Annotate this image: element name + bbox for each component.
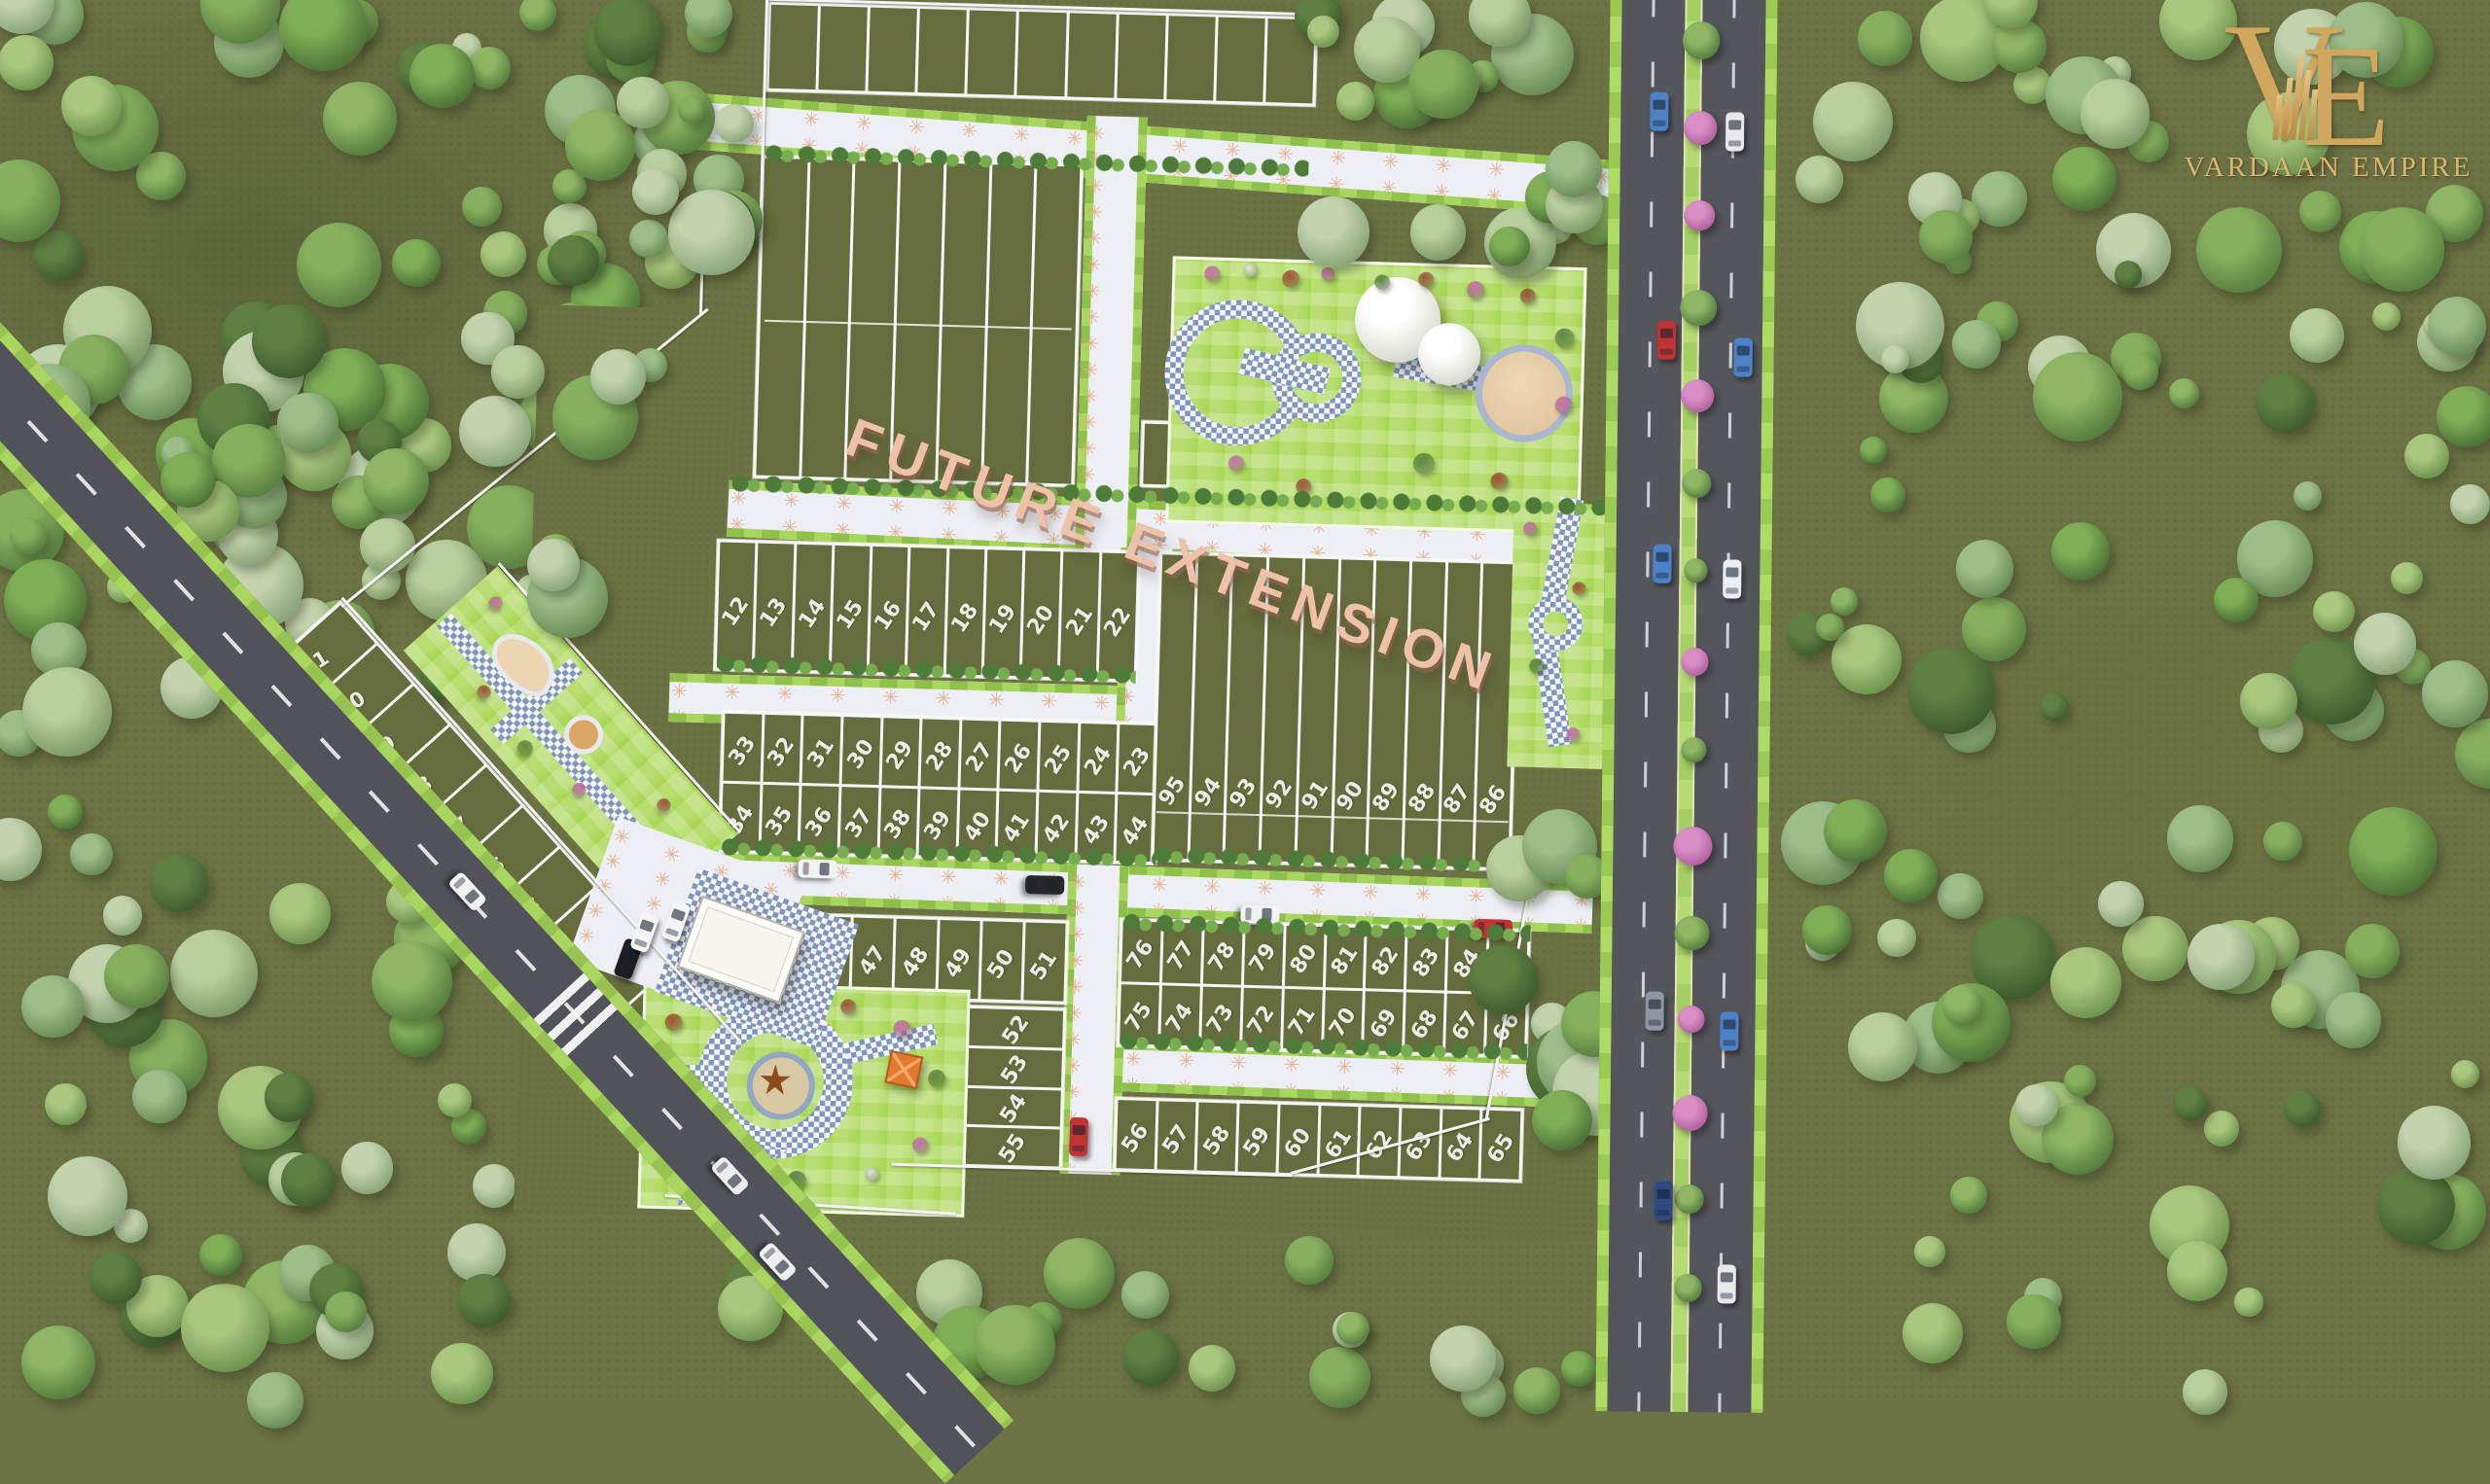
plot-95: 95	[1155, 554, 1195, 859]
car	[1725, 112, 1744, 151]
car	[1654, 1182, 1672, 1220]
shrub	[912, 1137, 928, 1152]
plot-57: 57	[1156, 1101, 1196, 1170]
plot-number: 36	[801, 803, 838, 841]
tree	[1683, 21, 1721, 59]
car	[1650, 92, 1668, 131]
plot-number: 41	[999, 809, 1036, 847]
future-plot	[756, 159, 807, 477]
plot-number: 64	[1441, 1128, 1478, 1166]
future-plot	[918, 9, 967, 93]
plot-number: 32	[764, 732, 800, 770]
brand-logo: V E VARDAAN EMPIRE	[2167, 4, 2490, 198]
tree	[1682, 469, 1712, 499]
shrub	[1572, 582, 1585, 595]
shrub	[928, 1070, 945, 1087]
future-plot	[768, 5, 817, 89]
plot-number: 94	[1190, 773, 1227, 811]
plot-number: 33	[724, 731, 761, 769]
flowering-tree	[1677, 1006, 1705, 1034]
future-plot	[938, 163, 989, 481]
plot-number: 90	[1333, 777, 1369, 815]
shrub	[1243, 263, 1257, 276]
plot-number: 17	[908, 598, 945, 636]
future-plot	[819, 6, 868, 90]
company-name: VARDAAN EMPIRE	[2167, 152, 2490, 184]
plot-number: 40	[959, 808, 996, 846]
plot-number: 31	[803, 734, 840, 772]
plot-64: 64	[1441, 1109, 1480, 1178]
plot-number: 52	[998, 1010, 1035, 1048]
plot-number: 20	[1023, 601, 1060, 639]
shrub	[1566, 727, 1580, 741]
plot-60: 60	[1278, 1105, 1318, 1174]
car	[798, 859, 837, 878]
plot-number: 53	[997, 1050, 1034, 1088]
plot-21: 21	[1060, 551, 1099, 678]
plot-number: 83	[1408, 943, 1445, 981]
car	[1645, 992, 1663, 1031]
lane-marking	[1637, 0, 1654, 1412]
plot-13: 13	[755, 544, 794, 670]
plot-number: 18	[946, 599, 983, 637]
lane-marking	[1718, 0, 1735, 1412]
plot-50: 50	[980, 921, 1022, 1000]
plot-number: 59	[1239, 1122, 1276, 1160]
plot-30: 30	[841, 717, 880, 785]
shrub	[1554, 328, 1575, 348]
plot-number: 22	[1099, 603, 1136, 641]
car	[1653, 545, 1671, 583]
plot-block-52-55: 52535455	[963, 1006, 1067, 1170]
shrub	[1520, 288, 1536, 303]
plot-number: 86	[1476, 782, 1512, 820]
plot-55: 55	[966, 1127, 1060, 1166]
plot-49: 49	[938, 920, 979, 999]
plot-number: 30	[842, 735, 879, 773]
future-plot	[1265, 18, 1314, 103]
plot-28: 28	[921, 719, 960, 787]
plot-52: 52	[969, 1008, 1063, 1047]
plot-row-33-23: 3332313029282726252423	[724, 714, 1157, 793]
car	[1025, 875, 1065, 895]
shrub	[1282, 270, 1299, 288]
plot-number: 89	[1369, 778, 1405, 816]
plot-33: 33	[724, 714, 763, 782]
plot-number: 79	[1245, 938, 1282, 976]
shrub	[840, 999, 856, 1014]
plot-number: 43	[1078, 811, 1115, 849]
plot-number: 38	[880, 805, 917, 843]
plot-number: 28	[921, 737, 958, 775]
tree	[1680, 290, 1717, 327]
amenity-park-east	[1507, 502, 1616, 769]
flowering-tree	[1672, 1095, 1708, 1131]
plot-number: 51	[1026, 946, 1063, 984]
shrub	[865, 1167, 878, 1181]
plot-16: 16	[870, 547, 908, 673]
plot-32: 32	[763, 715, 801, 783]
shrub	[1554, 396, 1572, 413]
shrub	[1413, 452, 1436, 475]
plot-number: 50	[983, 945, 1020, 983]
plot-47: 47	[852, 918, 894, 997]
plot-number: 58	[1198, 1121, 1235, 1159]
gazebo	[884, 1050, 923, 1089]
car	[710, 1155, 750, 1196]
plot-14: 14	[793, 545, 832, 671]
car	[1657, 321, 1676, 360]
plot-27: 27	[960, 721, 999, 789]
site-plan-canvas: ✳ ✳ ✳ ✳ ✳ ✳ ✳ ✳ ✳ ✳ ✳ ✳ ✳ ✳ ✳ ✳ ✳ ✳ ✳ ✳ …	[0, 0, 2490, 1400]
plot-number: 60	[1280, 1123, 1317, 1161]
tree	[1684, 558, 1708, 583]
car	[1069, 1117, 1088, 1157]
plot-number: 65	[1482, 1129, 1519, 1167]
plot-19: 19	[984, 549, 1023, 676]
plot-number: 35	[762, 802, 799, 840]
flowering-tree	[1673, 827, 1713, 866]
plot-number: 25	[1040, 740, 1077, 778]
plot-number: 19	[984, 600, 1021, 638]
tree	[1681, 737, 1706, 762]
plot-24: 24	[1079, 724, 1118, 792]
plot-number: 93	[1226, 774, 1263, 812]
future-plot	[1117, 15, 1165, 99]
plot-15: 15	[832, 546, 871, 672]
future-plot	[801, 159, 853, 477]
plot-number: 13	[756, 593, 793, 631]
future-plot	[968, 10, 1016, 94]
plot-59: 59	[1238, 1104, 1278, 1173]
plot-58: 58	[1197, 1103, 1237, 1172]
plot-25: 25	[1040, 723, 1079, 791]
plot-54: 54	[967, 1087, 1061, 1126]
car	[447, 871, 487, 912]
plot-number: 23	[1120, 743, 1156, 781]
plot-number: 37	[840, 804, 877, 842]
shrub	[1467, 281, 1484, 299]
plot-block-56-65: 56575859606162636465	[1114, 1097, 1524, 1183]
plot-48: 48	[895, 919, 937, 998]
plot-number: 80	[1286, 940, 1323, 978]
plot-number: 81	[1327, 941, 1364, 979]
shrub	[1523, 522, 1537, 536]
tree	[1675, 916, 1710, 951]
shrub	[664, 1013, 682, 1031]
flowering-tree	[1681, 379, 1715, 413]
car	[1718, 1264, 1736, 1303]
plot-number: 29	[882, 736, 919, 774]
plot-number: 84	[1448, 944, 1485, 982]
sand-circle	[1475, 343, 1575, 443]
plot-number: 78	[1204, 937, 1241, 975]
plot-number: 12	[718, 592, 755, 630]
plot-number: 77	[1163, 936, 1200, 974]
future-plot	[869, 8, 917, 92]
plot-number: 27	[961, 738, 998, 776]
plot-number: 57	[1158, 1120, 1195, 1158]
plot-17: 17	[907, 548, 946, 674]
plot-number: 95	[1154, 772, 1191, 810]
shrub	[514, 737, 536, 760]
shrub	[1228, 455, 1244, 471]
plot-number: 16	[871, 597, 907, 635]
plot-20: 20	[1022, 550, 1061, 677]
future-plot-row-top	[765, 2, 1317, 107]
plot-number: 49	[941, 944, 978, 982]
shrub	[1490, 473, 1508, 490]
plot-number: 14	[794, 594, 831, 632]
plot-number: 76	[1122, 936, 1159, 973]
future-plot	[1216, 18, 1264, 102]
plot-number: 56	[1118, 1119, 1155, 1157]
future-plot	[983, 164, 1035, 482]
plot-number: 42	[1038, 810, 1075, 848]
future-plot	[1029, 165, 1081, 483]
plot-23: 23	[1119, 724, 1157, 793]
flowering-tree	[1681, 648, 1709, 676]
shrub	[655, 795, 674, 815]
plot-87: 87	[1440, 562, 1480, 866]
plot-62: 62	[1360, 1107, 1400, 1176]
car	[1723, 559, 1741, 598]
plot-number: 21	[1061, 602, 1098, 640]
park-path-node	[1528, 596, 1584, 653]
plot-number: 15	[832, 596, 869, 634]
flowering-tree	[1684, 111, 1718, 145]
future-plot	[1166, 16, 1215, 100]
plot-number: 91	[1297, 776, 1334, 814]
plot-number: 54	[995, 1090, 1032, 1128]
plot-number: 47	[854, 941, 891, 979]
plot-number: 85	[1489, 945, 1526, 983]
shrub	[1204, 265, 1220, 281]
flowering-tree	[1684, 200, 1715, 231]
car	[1720, 1011, 1738, 1050]
tree	[1674, 1274, 1702, 1302]
plotted-site: ✳ ✳ ✳ ✳ ✳ ✳ ✳ ✳ ✳ ✳ ✳ ✳ ✳ ✳ ✳ ✳ ✳ ✳ ✳ ✳ …	[0, 0, 2490, 1438]
plot-number: 39	[919, 806, 956, 844]
future-plot	[1017, 12, 1066, 96]
tree	[1674, 1184, 1703, 1214]
shrub	[1418, 271, 1434, 287]
plot-number: 44	[1118, 812, 1155, 850]
future-plot	[1067, 13, 1116, 97]
plot-56: 56	[1117, 1100, 1156, 1169]
plot-31: 31	[802, 716, 841, 784]
plot-number: 26	[1001, 739, 1038, 777]
plot-number: 87	[1440, 780, 1476, 818]
highway-median	[1670, 0, 1702, 1412]
plot-number: 92	[1261, 775, 1298, 813]
main-highway	[1595, 0, 1777, 1413]
plot-12: 12	[717, 543, 756, 669]
plot-number: 55	[994, 1129, 1031, 1167]
plot-number: 48	[898, 943, 935, 981]
shrub	[486, 593, 506, 613]
plot-88: 88	[1404, 561, 1444, 866]
plot-26: 26	[1000, 722, 1039, 790]
plot-29: 29	[881, 718, 920, 786]
plot-number: 82	[1368, 942, 1405, 980]
plot-18: 18	[945, 548, 984, 675]
plot-number: 88	[1404, 779, 1441, 817]
plot-51: 51	[1023, 922, 1065, 1001]
plot-53: 53	[968, 1048, 1062, 1087]
plot-number: 24	[1080, 741, 1117, 779]
shrub	[1321, 267, 1334, 281]
car	[1734, 337, 1753, 376]
